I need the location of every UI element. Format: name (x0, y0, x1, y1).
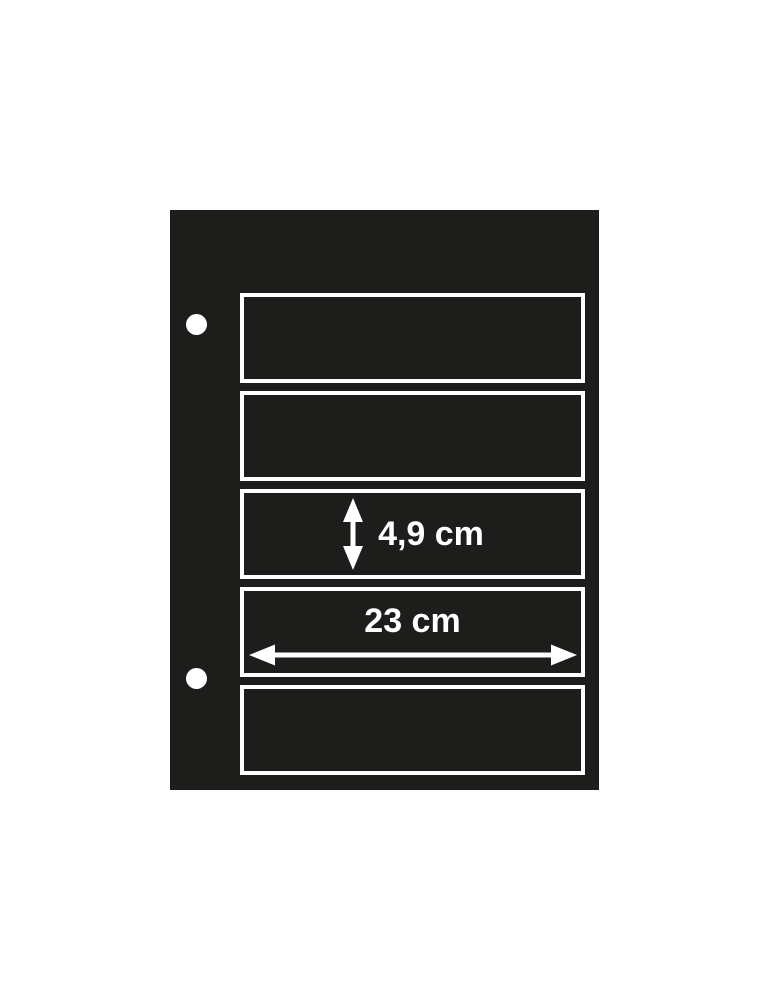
pocket-width-label: 23 cm (364, 604, 460, 638)
pocket-3: 4,9 cm (240, 489, 585, 579)
width-dimension-annotation: 23 cm (244, 598, 581, 667)
pocket-height-label: 4,9 cm (378, 517, 484, 551)
height-dimension-annotation: 4,9 cm (341, 498, 484, 570)
pocket-2 (240, 391, 585, 481)
pocket-column: 4,9 cm 23 cm (240, 293, 585, 775)
vertical-double-arrow-icon (341, 498, 365, 570)
binder-hole-top (186, 314, 207, 335)
pocket-4: 23 cm (240, 587, 585, 677)
horizontal-double-arrow-icon (249, 643, 577, 667)
binder-hole-bottom (186, 668, 207, 689)
pocket-1 (240, 293, 585, 383)
pocket-5 (240, 685, 585, 775)
stock-sheet: 4,9 cm 23 cm (170, 210, 599, 790)
